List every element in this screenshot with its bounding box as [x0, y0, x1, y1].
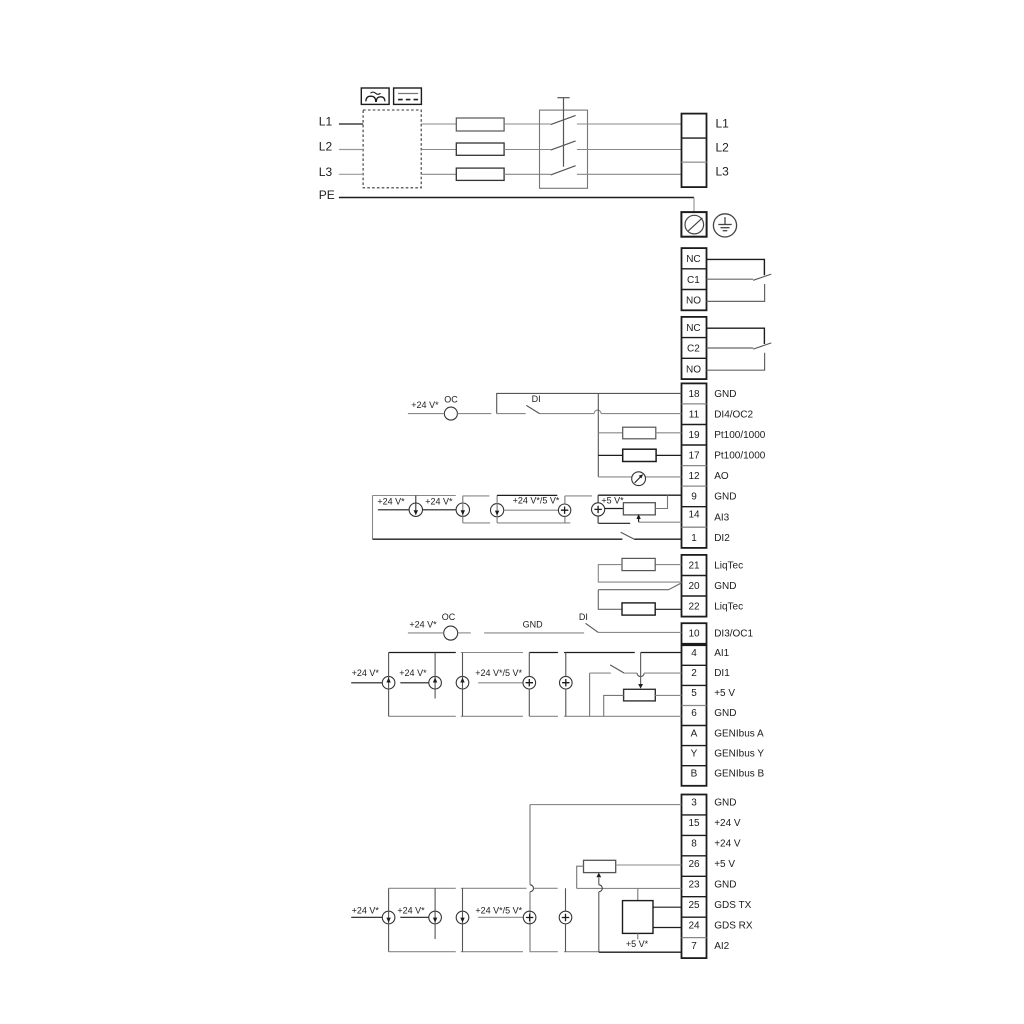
svg-text:17: 17 [688, 451, 700, 462]
svg-text:6: 6 [691, 708, 697, 719]
svg-text:21: 21 [688, 561, 700, 572]
svg-text:+5 V: +5 V [714, 688, 735, 699]
svg-text:22: 22 [688, 602, 700, 613]
svg-text:+5 V: +5 V [714, 859, 735, 870]
svg-text:GND: GND [714, 879, 736, 890]
svg-text:NO: NO [686, 364, 701, 375]
svg-text:NO: NO [686, 296, 701, 307]
svg-text:3: 3 [691, 798, 697, 809]
svg-text:9: 9 [691, 492, 697, 503]
svg-text:2: 2 [691, 668, 697, 679]
svg-text:L3: L3 [319, 165, 333, 179]
svg-text:+24 V*: +24 V* [409, 620, 437, 630]
svg-text:DI: DI [532, 394, 541, 404]
svg-text:5: 5 [691, 688, 697, 699]
svg-text:DI1: DI1 [714, 668, 730, 679]
svg-text:+24 V*: +24 V* [399, 668, 427, 678]
svg-text:L2: L2 [716, 140, 730, 154]
svg-text:A: A [691, 728, 698, 739]
svg-text:OC: OC [444, 394, 458, 404]
svg-text:L1: L1 [319, 114, 333, 128]
svg-text:AI2: AI2 [714, 941, 729, 952]
svg-text:GND: GND [714, 389, 736, 400]
svg-text:AO: AO [714, 471, 729, 482]
svg-text:19: 19 [688, 430, 700, 441]
svg-text:C2: C2 [687, 344, 700, 355]
svg-text:GND: GND [714, 581, 736, 592]
svg-text:DI3/OC1: DI3/OC1 [714, 629, 753, 640]
svg-text:GDS RX: GDS RX [714, 920, 753, 931]
svg-text:11: 11 [689, 410, 700, 421]
svg-text:7: 7 [691, 941, 697, 952]
svg-text:GENIbus B: GENIbus B [714, 769, 764, 780]
svg-text:+24 V*/5 V*: +24 V*/5 V* [475, 668, 522, 678]
svg-text:B: B [691, 769, 698, 780]
svg-text:24: 24 [688, 920, 700, 931]
svg-text:+24 V*: +24 V* [411, 400, 439, 410]
svg-text:GENIbus A: GENIbus A [714, 728, 764, 739]
svg-text:Y: Y [691, 748, 698, 759]
svg-text:LiqTec: LiqTec [714, 561, 743, 572]
svg-text:DI2: DI2 [714, 533, 730, 544]
svg-text:+24 V*: +24 V* [425, 496, 453, 506]
svg-text:PE: PE [319, 188, 335, 202]
svg-text:AI3: AI3 [714, 513, 729, 524]
svg-text:Pt100/1000: Pt100/1000 [714, 451, 766, 462]
svg-text:GENIbus Y: GENIbus Y [714, 748, 764, 759]
svg-text:26: 26 [688, 859, 700, 870]
svg-text:+5 V*: +5 V* [601, 495, 624, 505]
svg-text:12: 12 [688, 471, 700, 482]
svg-text:GND: GND [523, 620, 544, 630]
svg-text:23: 23 [688, 879, 700, 890]
svg-text:15: 15 [688, 818, 700, 829]
svg-text:AI1: AI1 [714, 648, 729, 659]
svg-text:+24 V*: +24 V* [352, 668, 380, 678]
svg-text:20: 20 [688, 581, 700, 592]
svg-text:+24 V: +24 V [714, 818, 741, 829]
svg-text:DI: DI [579, 612, 588, 622]
svg-text:LiqTec: LiqTec [714, 602, 743, 613]
svg-text:+24 V*/5 V*: +24 V*/5 V* [513, 496, 560, 506]
svg-text:14: 14 [688, 510, 700, 521]
svg-text:OC: OC [442, 612, 456, 622]
svg-text:+24 V*: +24 V* [352, 906, 380, 916]
svg-text:NC: NC [686, 254, 700, 265]
svg-text:GDS TX: GDS TX [714, 900, 751, 911]
svg-text:+24 V*/5 V*: +24 V*/5 V* [475, 906, 522, 916]
svg-text:L3: L3 [716, 165, 730, 179]
svg-text:1: 1 [691, 533, 697, 544]
svg-text:GND: GND [714, 492, 736, 503]
svg-text:C1: C1 [687, 275, 700, 286]
svg-text:4: 4 [691, 648, 697, 659]
svg-text:L1: L1 [716, 116, 730, 130]
svg-text:Pt100/1000: Pt100/1000 [714, 430, 766, 441]
svg-text:GND: GND [714, 708, 736, 719]
svg-text:10: 10 [688, 629, 700, 640]
svg-text:8: 8 [691, 839, 697, 850]
svg-text:+24 V: +24 V [714, 839, 741, 850]
svg-text:+5 V*: +5 V* [626, 939, 649, 949]
svg-text:NC: NC [686, 323, 700, 334]
svg-text:25: 25 [688, 900, 700, 911]
svg-text:+24 V*: +24 V* [397, 906, 425, 916]
svg-text:GND: GND [714, 798, 736, 809]
svg-text:+24 V*: +24 V* [377, 496, 405, 506]
svg-text:DI4/OC2: DI4/OC2 [714, 410, 753, 421]
svg-text:L2: L2 [319, 140, 333, 154]
svg-text:18: 18 [688, 389, 700, 400]
